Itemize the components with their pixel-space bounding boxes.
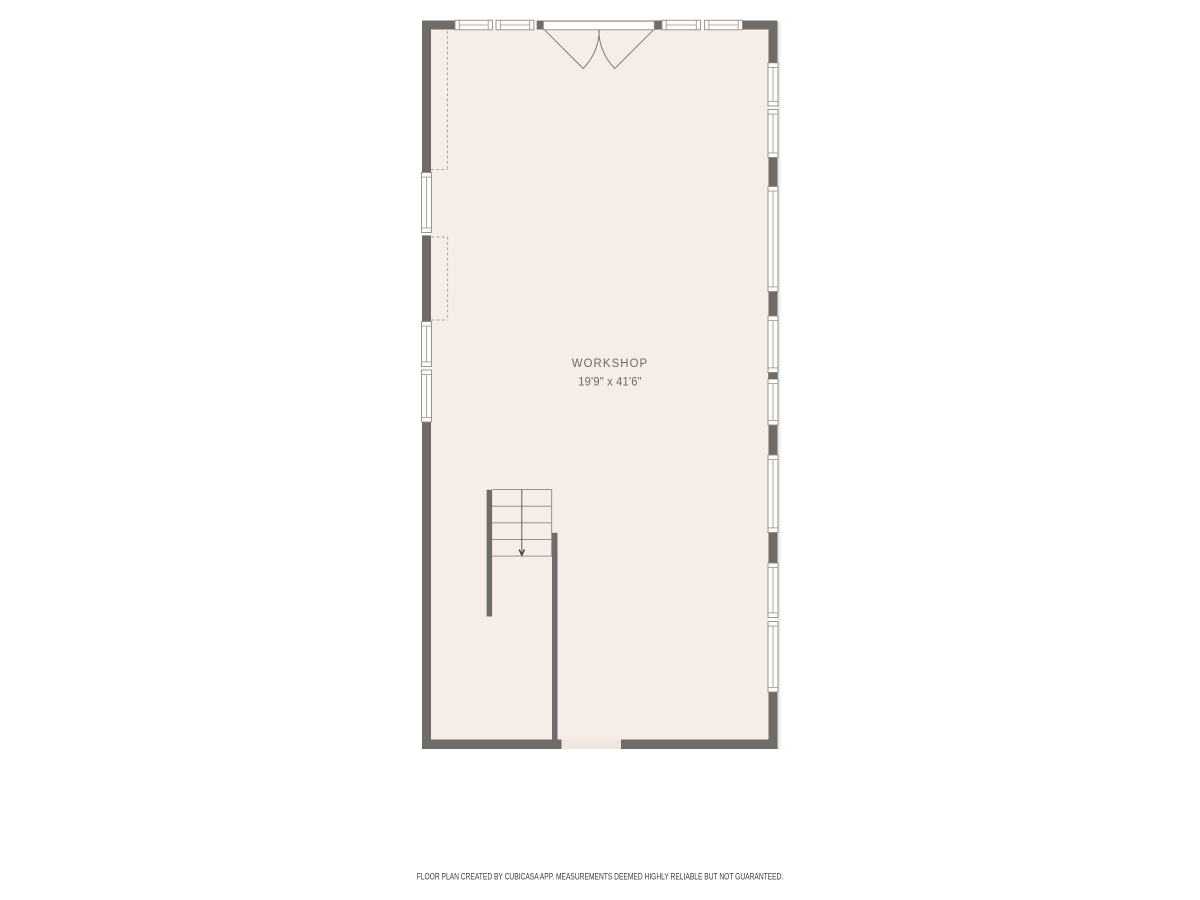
svg-text:WORKSHOP: WORKSHOP — [572, 356, 649, 370]
svg-text:19'9" x 41'6": 19'9" x 41'6" — [578, 375, 642, 389]
svg-text:FLOOR PLAN CREATED BY CUBICASA: FLOOR PLAN CREATED BY CUBICASA APP. MEAS… — [417, 872, 784, 882]
